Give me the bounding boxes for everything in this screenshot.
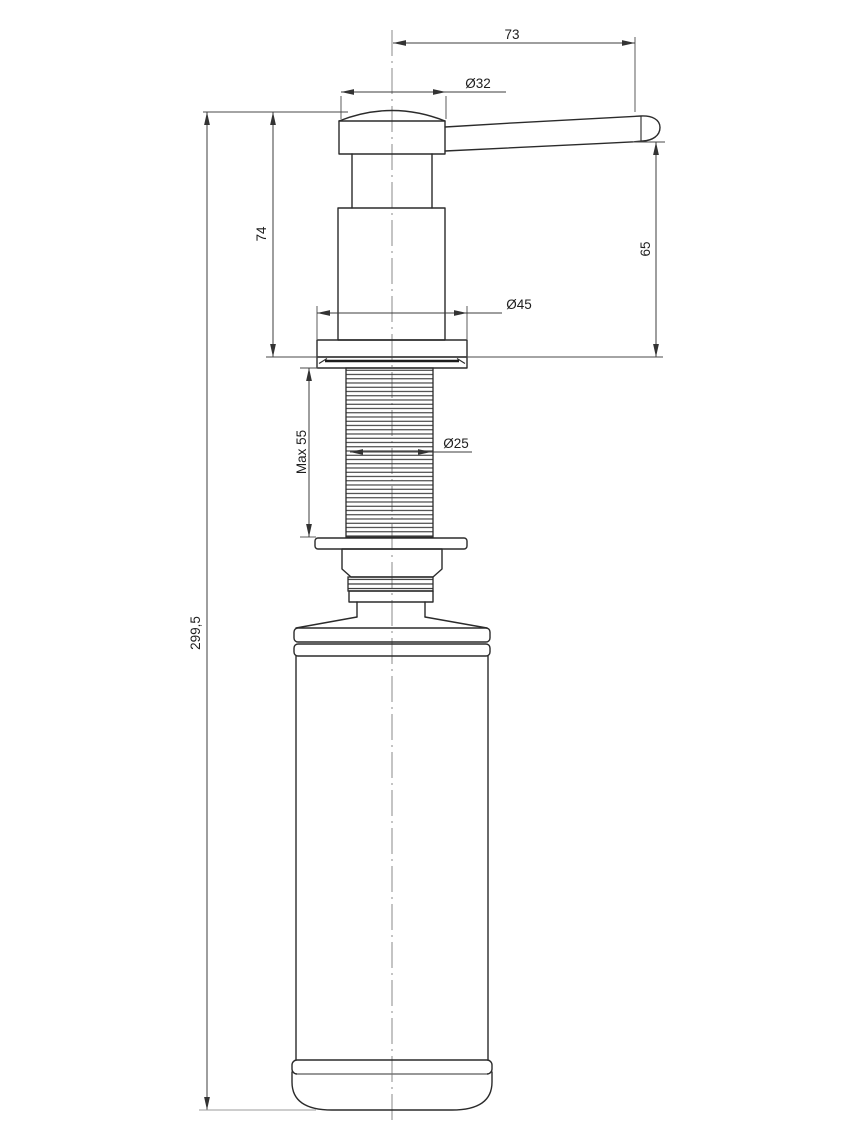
dimension-flange-diameter: Ø45 xyxy=(317,297,532,339)
dim-label-73: 73 xyxy=(504,27,519,42)
dim-label-74: 74 xyxy=(254,226,269,242)
dispenser-drawing: 73 Ø32 74 65 Ø45 Max 55 xyxy=(0,0,848,1139)
technical-drawing-canvas: 73 Ø32 74 65 Ø45 Max 55 xyxy=(0,0,848,1139)
dim-label-65: 65 xyxy=(638,241,653,256)
dim-label-d25: Ø25 xyxy=(443,436,469,451)
spout xyxy=(445,116,660,151)
dim-label-299-5: 299,5 xyxy=(188,616,203,650)
dimension-spout-height: 65 xyxy=(633,142,665,357)
dimension-overall-height: 299,5 xyxy=(188,112,316,1110)
locknut xyxy=(315,538,467,577)
dimension-pump-height: 74 xyxy=(203,112,348,357)
dimension-spout-projection: 73 xyxy=(393,27,635,112)
dim-label-d45: Ø45 xyxy=(506,297,532,312)
dim-label-d32: Ø32 xyxy=(465,76,491,91)
dim-label-max55: Max 55 xyxy=(294,430,309,474)
dimension-thread-length: Max 55 xyxy=(294,368,318,537)
